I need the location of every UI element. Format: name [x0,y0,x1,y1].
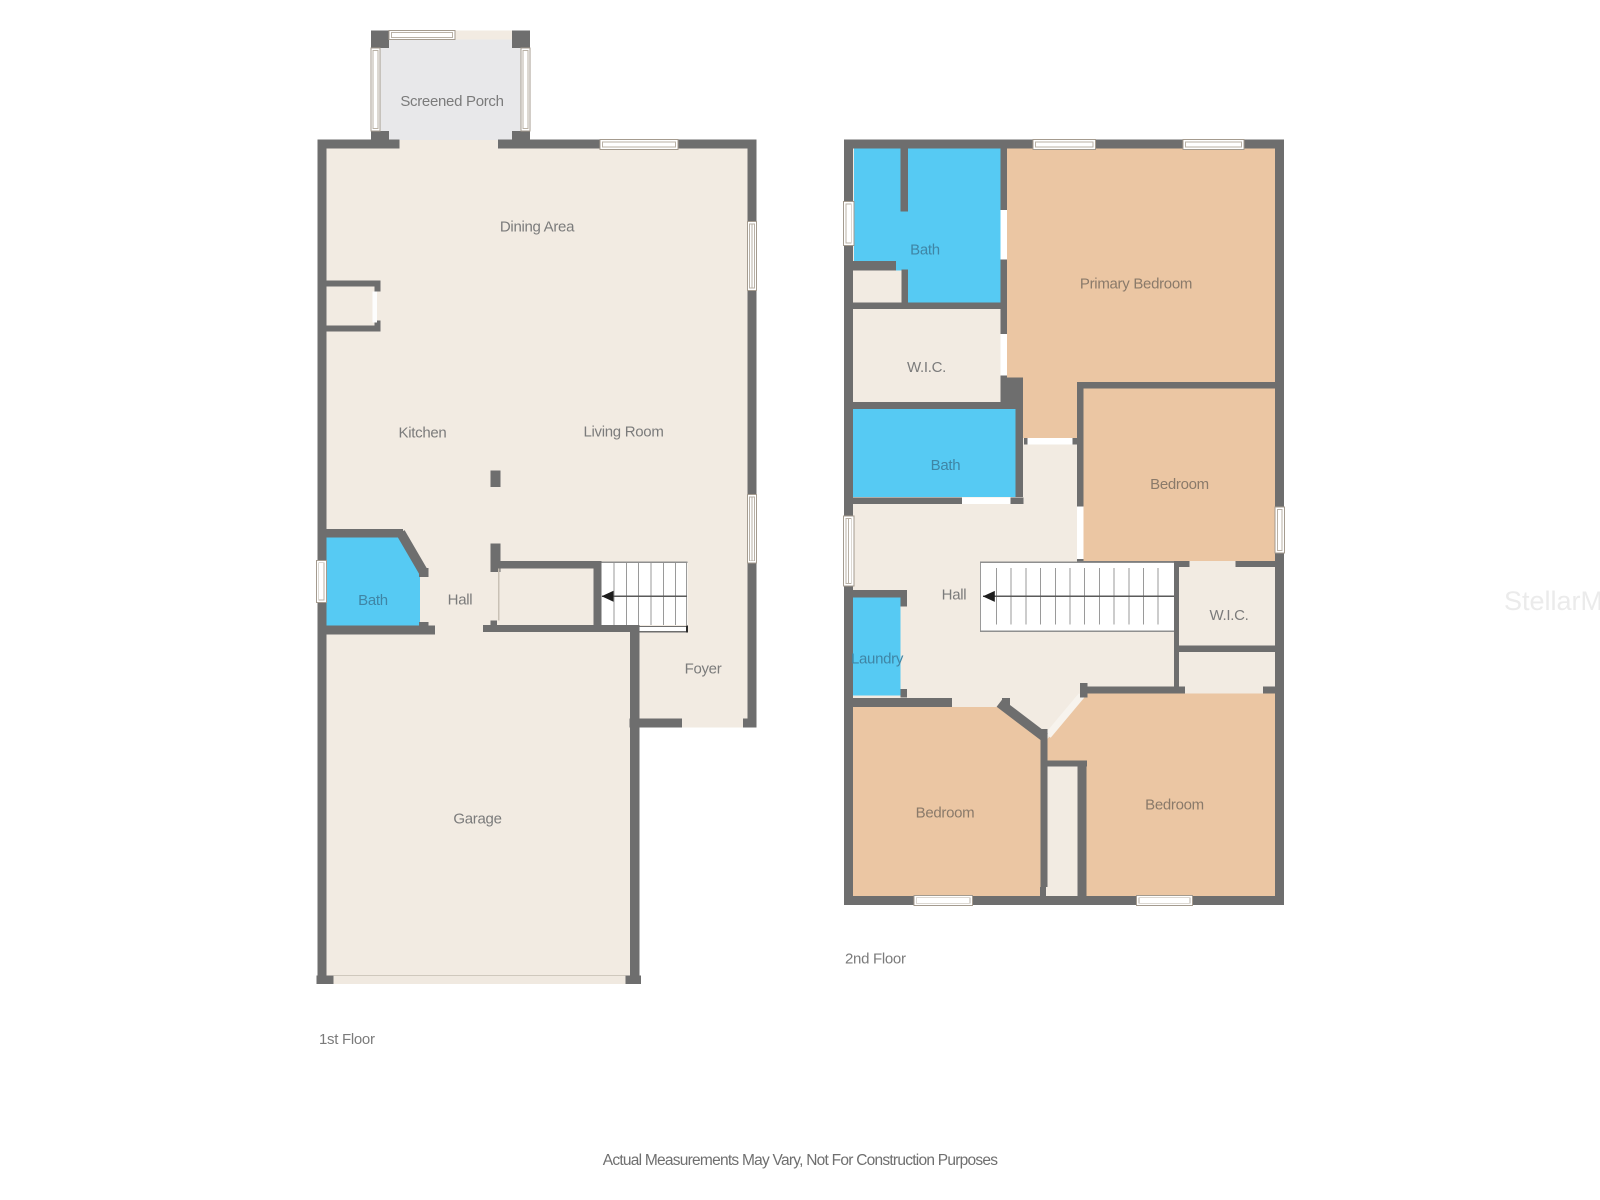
svg-text:Actual Measurements May Vary,: Actual Measurements May Vary, Not For Co… [603,1152,999,1169]
svg-text:Laundry: Laundry [851,651,904,668]
svg-text:StellarMLS: StellarMLS [1504,586,1600,616]
svg-text:W.I.C.: W.I.C. [907,359,946,376]
svg-text:Garage: Garage [453,811,501,828]
svg-text:Bedroom: Bedroom [1145,797,1204,814]
svg-text:1st Floor: 1st Floor [319,1031,375,1048]
svg-text:Hall: Hall [448,592,473,609]
svg-text:Bath: Bath [910,242,940,259]
svg-text:Primary Bedroom: Primary Bedroom [1080,276,1192,293]
svg-text:Kitchen: Kitchen [399,425,447,442]
svg-text:Hall: Hall [942,587,967,604]
svg-text:Foyer: Foyer [685,661,722,678]
svg-text:Living Room: Living Room [583,424,663,441]
svg-text:Screened Porch: Screened Porch [400,93,503,110]
svg-text:Bedroom: Bedroom [916,805,975,822]
svg-text:2nd Floor: 2nd Floor [845,951,906,968]
svg-text:W.I.C.: W.I.C. [1209,607,1248,624]
svg-text:Bath: Bath [931,457,961,474]
svg-text:Bath: Bath [358,592,388,609]
svg-text:Dining Area: Dining Area [500,219,575,236]
svg-text:Bedroom: Bedroom [1150,476,1209,493]
